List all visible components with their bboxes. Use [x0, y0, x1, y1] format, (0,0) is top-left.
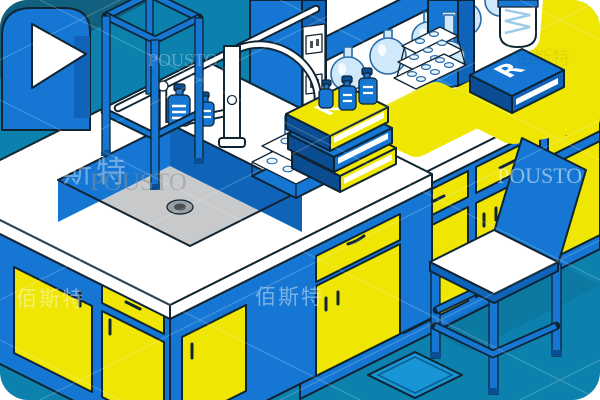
watermark-text: 佰斯特	[255, 285, 324, 309]
power-outlet	[306, 34, 322, 54]
watermark-text: 佰斯特	[16, 287, 85, 311]
lab-illustration: R	[0, 0, 600, 400]
sink-drain	[167, 200, 193, 214]
faucet-base	[219, 138, 245, 147]
graduated-cylinder	[498, 0, 538, 47]
watermark-text: POUSTO	[90, 169, 187, 196]
lab-scene: R	[0, 0, 600, 400]
rounded-chair	[2, 8, 90, 130]
watermark-text: POUSTO	[497, 163, 582, 188]
watermark-text: 佰斯特	[516, 48, 570, 69]
